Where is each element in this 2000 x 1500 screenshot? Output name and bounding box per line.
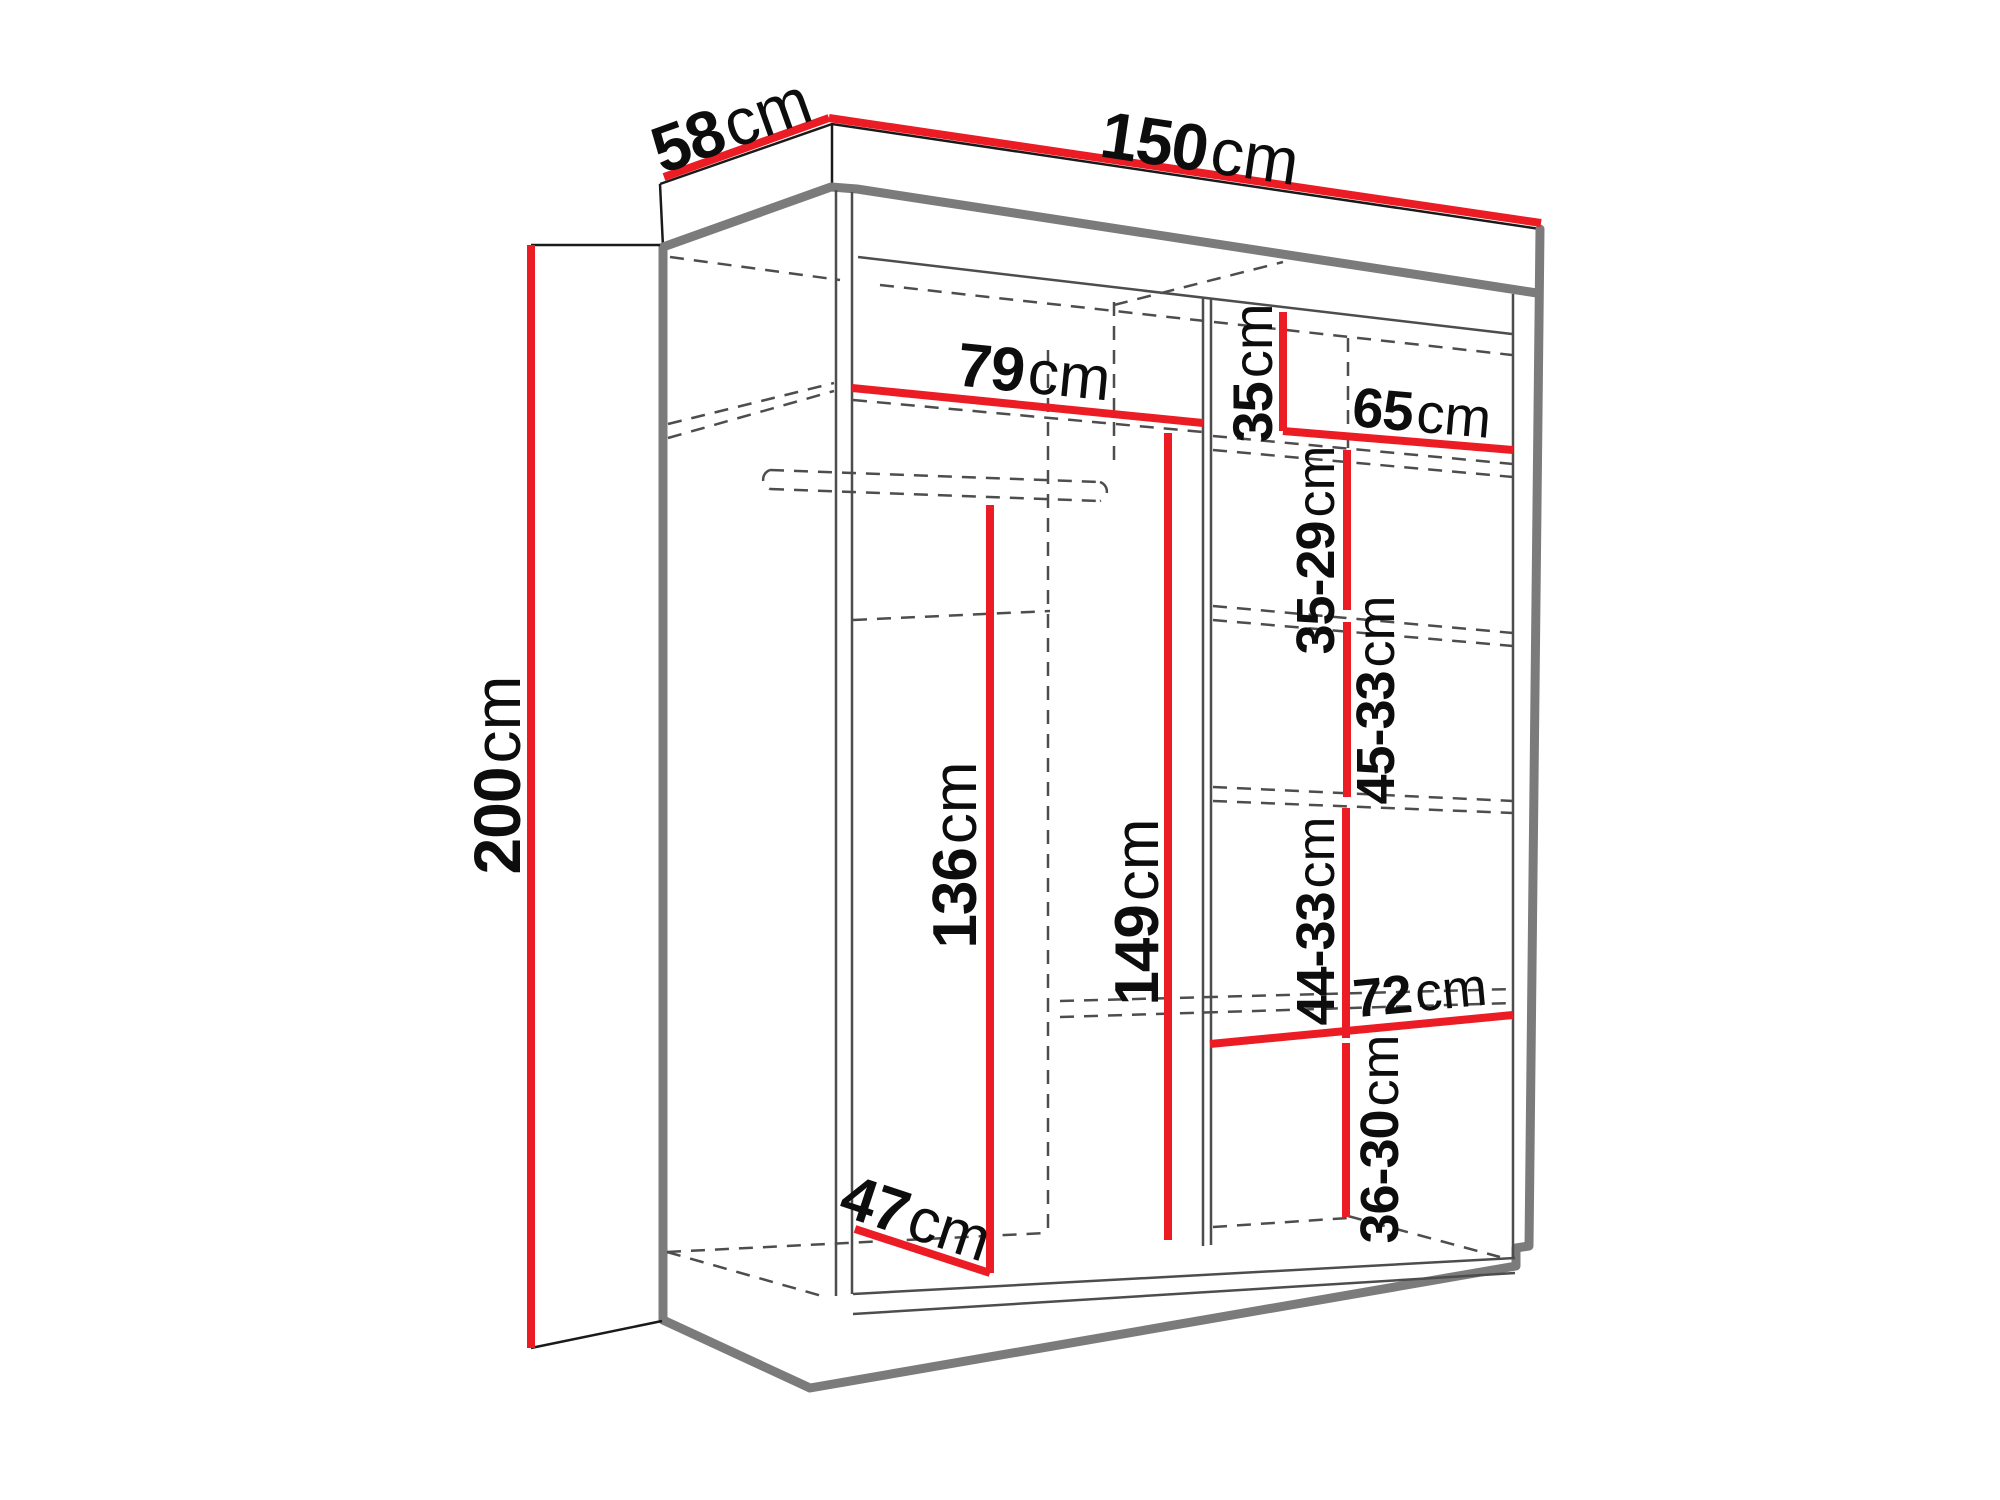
dim-label-right-width: 65cm bbox=[1350, 375, 1494, 450]
dim-label-hang-height: 136cm bbox=[921, 761, 990, 948]
dim-label-gap4: 36-30cm bbox=[1350, 1034, 1410, 1243]
wardrobe-dimension-diagram: 58cm 150cm 200cm 79cm 35cm 65cm 35-29cm … bbox=[0, 0, 2000, 1500]
dim-label-gap2: 45-33cm bbox=[1346, 595, 1406, 804]
dim-label-gap3: 44-33cm bbox=[1286, 816, 1346, 1025]
height-connector-bottom bbox=[531, 1321, 662, 1348]
dim-label-bottom-width: 72cm bbox=[1350, 957, 1489, 1030]
dim-label-right-height: 149cm bbox=[1103, 818, 1172, 1005]
dim-label-top-shelf: 35cm bbox=[1221, 304, 1284, 443]
dim-label-gap1: 35-29cm bbox=[1286, 445, 1346, 654]
diagram-svg: 58cm 150cm 200cm 79cm 35cm 65cm 35-29cm … bbox=[0, 0, 2000, 1500]
dim-label-height: 200cm bbox=[460, 675, 534, 874]
